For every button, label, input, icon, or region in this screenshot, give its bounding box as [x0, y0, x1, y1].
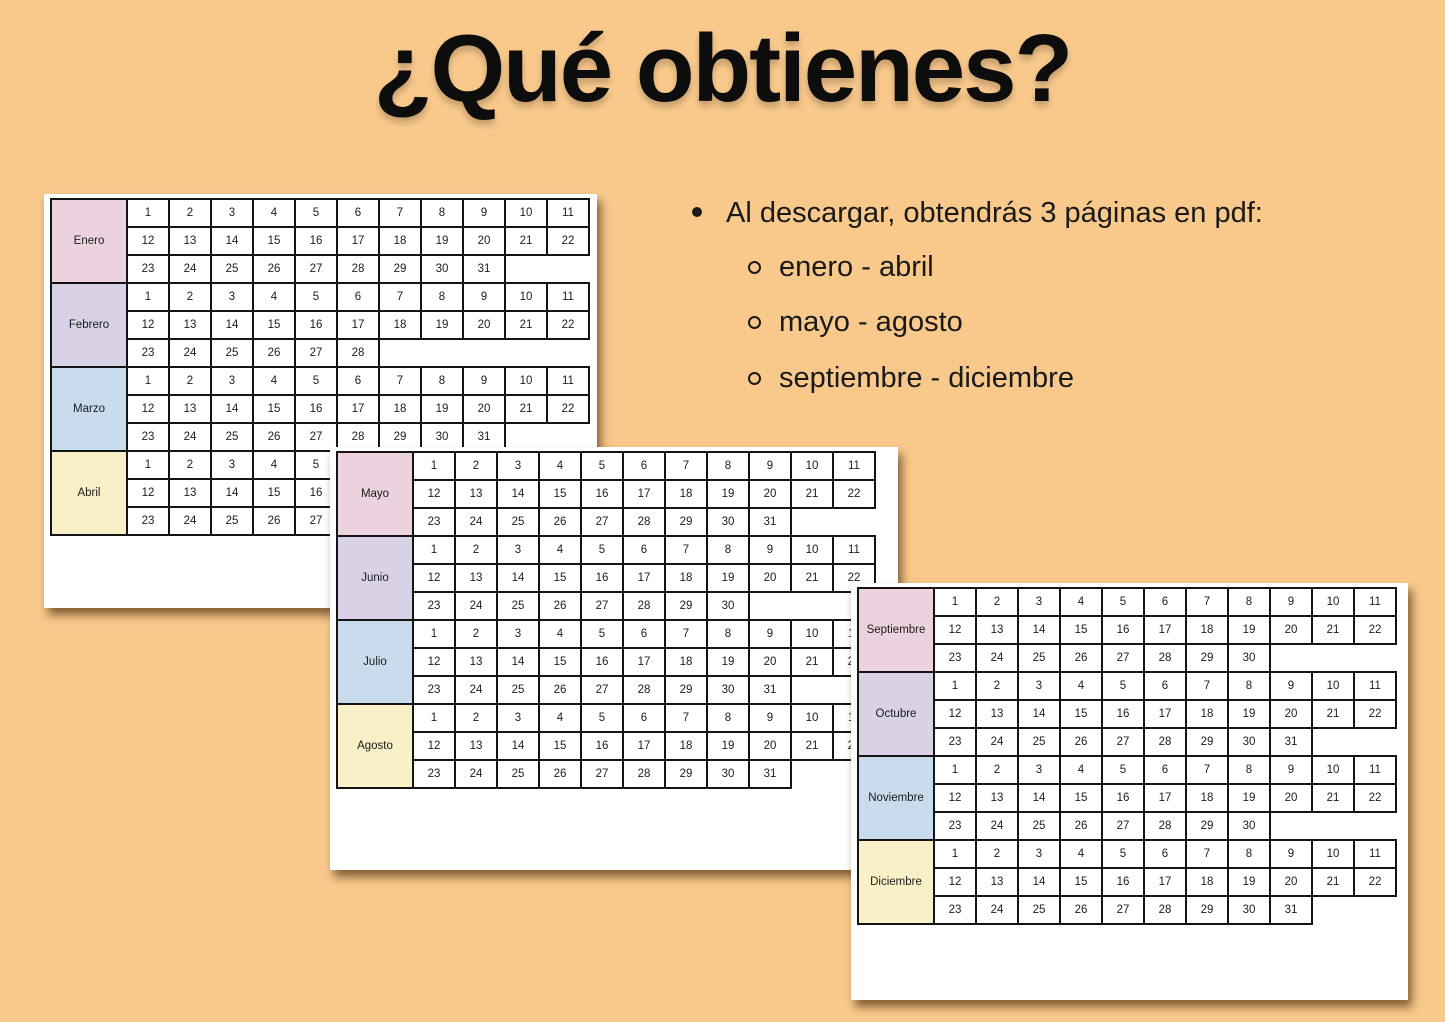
- day-cell: 30: [1227, 643, 1271, 673]
- day-cell: 2: [975, 755, 1019, 785]
- day-cell: 5: [294, 366, 338, 396]
- day-cell: 21: [790, 731, 834, 761]
- day-cell: 1: [126, 282, 170, 312]
- day-cell: 17: [336, 394, 380, 424]
- day-cell: 21: [1311, 867, 1355, 897]
- month-row: 232425262728293031: [412, 759, 876, 789]
- bullet-sub-item: mayo - agosto: [748, 301, 1302, 345]
- month-block-enero: Enero12345678910111213141516171819202122…: [50, 198, 597, 284]
- month-row: 1234567891011: [126, 198, 590, 228]
- month-row: 2324252627282930: [933, 643, 1397, 673]
- month-label: Junio: [336, 535, 414, 621]
- day-cell: 17: [1143, 615, 1187, 645]
- bullet-sub-list: enero - abril mayo - agosto septiembre -…: [748, 246, 1302, 401]
- day-cell: 10: [790, 535, 834, 565]
- day-cell: 9: [748, 535, 792, 565]
- day-cell: 13: [168, 478, 212, 508]
- day-cell: 13: [454, 731, 498, 761]
- day-cell: 30: [706, 675, 750, 705]
- day-cell: 6: [622, 535, 666, 565]
- month-block-noviembre: Noviembre1234567891011121314151617181920…: [857, 755, 1408, 841]
- day-cell: 15: [1059, 783, 1103, 813]
- day-cell: 22: [1353, 867, 1397, 897]
- day-cell: 14: [1017, 615, 1061, 645]
- day-cell: 18: [664, 479, 708, 509]
- day-cell: 19: [1227, 699, 1271, 729]
- day-cell: 23: [126, 422, 170, 452]
- day-cell: 20: [748, 479, 792, 509]
- day-cell: 20: [462, 310, 506, 340]
- day-cell: 17: [622, 731, 666, 761]
- day-cell: 4: [538, 619, 582, 649]
- day-cell: 20: [748, 563, 792, 593]
- bullet-sub-text-septiembre-diciembre: septiembre - diciembre: [779, 357, 1074, 401]
- day-cell: 1: [412, 535, 456, 565]
- day-cell: 22: [1353, 615, 1397, 645]
- day-cell: 13: [454, 479, 498, 509]
- month-rows: 1234567891011121314151617181920212223242…: [412, 619, 876, 705]
- day-cell: 29: [664, 507, 708, 537]
- day-cell: 4: [538, 535, 582, 565]
- day-cell: 9: [748, 703, 792, 733]
- bullet-circle-icon: [748, 261, 761, 274]
- day-cell: 9: [748, 451, 792, 481]
- day-cell: 11: [546, 366, 590, 396]
- day-cell: 20: [1269, 615, 1313, 645]
- day-cell: 16: [580, 563, 624, 593]
- month-label: Abril: [50, 450, 128, 536]
- day-cell: 21: [1311, 699, 1355, 729]
- day-cell: 27: [580, 507, 624, 537]
- day-cell: 5: [1101, 587, 1145, 617]
- month-rows: 1234567891011121314151617181920212223242…: [933, 839, 1397, 925]
- day-cell: 9: [748, 619, 792, 649]
- bullet-main-text: Al descargar, obtendrás 3 páginas en pdf…: [726, 192, 1286, 236]
- day-cell: 11: [832, 535, 876, 565]
- day-cell: 21: [504, 394, 548, 424]
- day-cell: 14: [1017, 699, 1061, 729]
- bullet-sub-text-mayo-agosto: mayo - agosto: [779, 301, 963, 345]
- day-cell: 3: [496, 451, 540, 481]
- day-cell: 10: [504, 198, 548, 228]
- day-cell: 1: [933, 587, 977, 617]
- day-cell: 21: [790, 647, 834, 677]
- day-cell: 21: [504, 226, 548, 256]
- day-cell: 24: [168, 506, 212, 536]
- day-cell: 14: [496, 647, 540, 677]
- day-cell: 23: [126, 254, 170, 284]
- day-cell: 9: [1269, 755, 1313, 785]
- day-cell: 14: [1017, 867, 1061, 897]
- day-cell: 2: [454, 703, 498, 733]
- bullet-list: Al descargar, obtendrás 3 páginas en pdf…: [692, 192, 1302, 412]
- day-cell: 24: [975, 811, 1019, 841]
- month-row: 1213141516171819202122: [933, 867, 1397, 897]
- day-cell: 14: [210, 478, 254, 508]
- day-cell: 29: [1185, 895, 1229, 925]
- day-cell: 24: [168, 338, 212, 368]
- day-cell: 19: [1227, 783, 1271, 813]
- day-cell: 12: [933, 615, 977, 645]
- day-cell: 18: [1185, 867, 1229, 897]
- day-cell: 21: [790, 563, 834, 593]
- day-cell: 26: [252, 506, 296, 536]
- bullet-sub-item: septiembre - diciembre: [748, 357, 1302, 401]
- day-cell: 24: [454, 675, 498, 705]
- day-cell: 28: [622, 759, 666, 789]
- day-cell: 3: [496, 535, 540, 565]
- day-cell: 28: [1143, 895, 1187, 925]
- month-row: 232425262728: [126, 338, 590, 368]
- day-cell: 16: [294, 394, 338, 424]
- day-cell: 2: [975, 671, 1019, 701]
- day-cell: 13: [975, 783, 1019, 813]
- day-cell: 8: [420, 198, 464, 228]
- day-cell: 8: [1227, 839, 1271, 869]
- bullet-item-main: Al descargar, obtendrás 3 páginas en pdf…: [692, 192, 1302, 236]
- day-cell: 12: [412, 563, 456, 593]
- month-row: 232425262728293031: [412, 675, 876, 705]
- day-cell: 31: [748, 675, 792, 705]
- day-cell: 30: [1227, 811, 1271, 841]
- day-cell: 7: [378, 198, 422, 228]
- month-row: 1234567891011: [933, 587, 1397, 617]
- month-row: 1234567891011: [933, 671, 1397, 701]
- month-rows: 1234567891011121314151617181920212223242…: [933, 587, 1397, 673]
- bullet-dot-icon: [692, 207, 702, 217]
- day-cell: 26: [538, 675, 582, 705]
- day-cell: 16: [1101, 783, 1145, 813]
- day-cell: 17: [1143, 783, 1187, 813]
- day-cell: 10: [790, 451, 834, 481]
- day-cell: 26: [1059, 727, 1103, 757]
- day-cell: 25: [210, 254, 254, 284]
- day-cell: 14: [496, 731, 540, 761]
- day-cell: 6: [622, 703, 666, 733]
- day-cell: 8: [706, 703, 750, 733]
- day-cell: 7: [664, 535, 708, 565]
- day-cell: 25: [496, 591, 540, 621]
- day-cell: 3: [210, 198, 254, 228]
- month-block-septiembre: Septiembre123456789101112131415161718192…: [857, 587, 1408, 673]
- day-cell: 10: [790, 619, 834, 649]
- month-rows: 1234567891011121314151617181920212223242…: [412, 451, 876, 537]
- day-cell: 26: [1059, 643, 1103, 673]
- day-cell: 18: [378, 310, 422, 340]
- day-cell: 12: [933, 699, 977, 729]
- day-cell: 17: [1143, 867, 1187, 897]
- month-label: Noviembre: [857, 755, 935, 841]
- day-cell: 9: [1269, 839, 1313, 869]
- day-cell: 16: [1101, 699, 1145, 729]
- day-cell: 1: [126, 366, 170, 396]
- month-block-diciembre: Diciembre1234567891011121314151617181920…: [857, 839, 1408, 925]
- day-cell: 10: [1311, 839, 1355, 869]
- month-label: Septiembre: [857, 587, 935, 673]
- month-row: 1213141516171819202122: [412, 647, 876, 677]
- day-cell: 21: [1311, 615, 1355, 645]
- day-cell: 12: [933, 867, 977, 897]
- day-cell: 17: [1143, 699, 1187, 729]
- month-label: Octubre: [857, 671, 935, 757]
- day-cell: 13: [975, 699, 1019, 729]
- day-cell: 5: [1101, 671, 1145, 701]
- day-cell: 26: [538, 759, 582, 789]
- day-cell: 3: [1017, 671, 1061, 701]
- day-cell: 18: [1185, 699, 1229, 729]
- day-cell: 25: [496, 675, 540, 705]
- calendar-page-septiembre-diciembre: Septiembre123456789101112131415161718192…: [851, 583, 1408, 1000]
- day-cell: 13: [454, 563, 498, 593]
- day-cell: 23: [933, 895, 977, 925]
- day-cell: 8: [706, 535, 750, 565]
- day-cell: 13: [168, 310, 212, 340]
- day-cell: 18: [378, 226, 422, 256]
- day-cell: 11: [1353, 587, 1397, 617]
- day-cell: 29: [1185, 727, 1229, 757]
- day-cell: 24: [454, 759, 498, 789]
- day-cell: 17: [622, 647, 666, 677]
- day-cell: 27: [294, 254, 338, 284]
- day-cell: 24: [168, 254, 212, 284]
- day-cell: 10: [1311, 671, 1355, 701]
- day-cell: 29: [378, 254, 422, 284]
- day-cell: 31: [748, 759, 792, 789]
- day-cell: 5: [580, 535, 624, 565]
- day-cell: 2: [454, 535, 498, 565]
- day-cell: 20: [462, 226, 506, 256]
- month-row: 1234567891011: [933, 839, 1397, 869]
- day-cell: 11: [1353, 839, 1397, 869]
- month-row: 1213141516171819202122: [933, 699, 1397, 729]
- day-cell: 25: [1017, 811, 1061, 841]
- day-cell: 5: [1101, 839, 1145, 869]
- day-cell: 11: [546, 282, 590, 312]
- day-cell: 14: [210, 310, 254, 340]
- day-cell: 26: [538, 591, 582, 621]
- bullet-sub-text-enero-abril: enero - abril: [779, 246, 934, 290]
- day-cell: 28: [622, 507, 666, 537]
- day-cell: 1: [933, 839, 977, 869]
- day-cell: 21: [790, 479, 834, 509]
- day-cell: 15: [252, 310, 296, 340]
- month-label: Diciembre: [857, 839, 935, 925]
- day-cell: 8: [1227, 671, 1271, 701]
- day-cell: 28: [1143, 727, 1187, 757]
- month-block-julio: Julio12345678910111213141516171819202122…: [336, 619, 898, 705]
- day-cell: 19: [1227, 615, 1271, 645]
- day-cell: 20: [748, 731, 792, 761]
- day-cell: 3: [1017, 839, 1061, 869]
- month-row: 1213141516171819202122: [126, 394, 590, 424]
- day-cell: 28: [336, 338, 380, 368]
- month-row: 1213141516171819202122: [933, 615, 1397, 645]
- day-cell: 16: [580, 731, 624, 761]
- day-cell: 19: [420, 310, 464, 340]
- day-cell: 11: [832, 451, 876, 481]
- day-cell: 1: [126, 450, 170, 480]
- day-cell: 24: [975, 643, 1019, 673]
- calendar-page-mayo-agosto: Mayo123456789101112131415161718192021222…: [330, 447, 898, 870]
- day-cell: 9: [1269, 671, 1313, 701]
- day-cell: 6: [1143, 839, 1187, 869]
- day-cell: 28: [1143, 643, 1187, 673]
- month-label: Agosto: [336, 703, 414, 789]
- day-cell: 27: [580, 591, 624, 621]
- day-cell: 3: [210, 366, 254, 396]
- day-cell: 3: [210, 450, 254, 480]
- day-cell: 15: [538, 479, 582, 509]
- day-cell: 7: [664, 619, 708, 649]
- day-cell: 30: [1227, 895, 1271, 925]
- month-rows: 1234567891011121314151617181920212223242…: [412, 535, 876, 621]
- bullet-circle-icon: [748, 316, 761, 329]
- day-cell: 10: [504, 366, 548, 396]
- day-cell: 7: [378, 282, 422, 312]
- day-cell: 7: [1185, 755, 1229, 785]
- month-row: 1234567891011: [412, 535, 876, 565]
- day-cell: 11: [546, 198, 590, 228]
- day-cell: 24: [454, 507, 498, 537]
- day-cell: 20: [1269, 867, 1313, 897]
- day-cell: 1: [412, 619, 456, 649]
- day-cell: 25: [210, 506, 254, 536]
- day-cell: 19: [706, 479, 750, 509]
- day-cell: 31: [462, 254, 506, 284]
- day-cell: 25: [1017, 895, 1061, 925]
- day-cell: 23: [412, 507, 456, 537]
- day-cell: 3: [496, 619, 540, 649]
- month-row: 1234567891011: [126, 282, 590, 312]
- day-cell: 3: [210, 282, 254, 312]
- day-cell: 14: [210, 394, 254, 424]
- day-cell: 2: [975, 587, 1019, 617]
- day-cell: 4: [252, 450, 296, 480]
- day-cell: 29: [664, 675, 708, 705]
- day-cell: 26: [252, 422, 296, 452]
- day-cell: 9: [462, 198, 506, 228]
- day-cell: 8: [1227, 755, 1271, 785]
- day-cell: 19: [706, 731, 750, 761]
- day-cell: 26: [1059, 895, 1103, 925]
- month-block-marzo: Marzo12345678910111213141516171819202122…: [50, 366, 597, 452]
- day-cell: 24: [975, 895, 1019, 925]
- day-cell: 15: [1059, 867, 1103, 897]
- day-cell: 29: [1185, 643, 1229, 673]
- day-cell: 27: [294, 338, 338, 368]
- day-cell: 14: [1017, 783, 1061, 813]
- day-cell: 22: [546, 310, 590, 340]
- month-label: Febrero: [50, 282, 128, 368]
- day-cell: 31: [1269, 895, 1313, 925]
- day-cell: 30: [706, 759, 750, 789]
- month-row: 232425262728293031: [412, 507, 876, 537]
- day-cell: 1: [933, 755, 977, 785]
- day-cell: 6: [1143, 587, 1187, 617]
- day-cell: 18: [1185, 615, 1229, 645]
- day-cell: 31: [1269, 727, 1313, 757]
- day-cell: 16: [1101, 615, 1145, 645]
- day-cell: 8: [1227, 587, 1271, 617]
- day-cell: 13: [975, 867, 1019, 897]
- day-cell: 9: [462, 366, 506, 396]
- month-row: 1213141516171819202122: [412, 479, 876, 509]
- day-cell: 3: [1017, 587, 1061, 617]
- day-cell: 18: [378, 394, 422, 424]
- day-cell: 29: [664, 759, 708, 789]
- day-cell: 27: [1101, 643, 1145, 673]
- day-cell: 31: [748, 507, 792, 537]
- month-block-agosto: Agosto1234567891011121314151617181920212…: [336, 703, 898, 789]
- slide-canvas: ¿Qué obtienes? Al descargar, obtendrás 3…: [0, 0, 1445, 1022]
- day-cell: 5: [580, 619, 624, 649]
- day-cell: 13: [975, 615, 1019, 645]
- day-cell: 15: [1059, 699, 1103, 729]
- day-cell: 18: [664, 647, 708, 677]
- day-cell: 4: [252, 282, 296, 312]
- day-cell: 14: [210, 226, 254, 256]
- month-label: Enero: [50, 198, 128, 284]
- month-rows: 1234567891011121314151617181920212223242…: [126, 366, 590, 452]
- day-cell: 9: [462, 282, 506, 312]
- day-cell: 28: [336, 254, 380, 284]
- month-row: 1213141516171819202122: [126, 310, 590, 340]
- month-row: 1213141516171819202122: [412, 731, 876, 761]
- day-cell: 25: [496, 507, 540, 537]
- day-cell: 12: [126, 226, 170, 256]
- day-cell: 9: [1269, 587, 1313, 617]
- day-cell: 19: [420, 226, 464, 256]
- month-row: 1234567891011: [412, 703, 876, 733]
- day-cell: 4: [1059, 755, 1103, 785]
- day-cell: 12: [412, 479, 456, 509]
- day-cell: 8: [706, 619, 750, 649]
- day-cell: 4: [1059, 587, 1103, 617]
- day-cell: 1: [126, 198, 170, 228]
- day-cell: 8: [420, 366, 464, 396]
- day-cell: 24: [168, 422, 212, 452]
- day-cell: 1: [933, 671, 977, 701]
- day-cell: 7: [1185, 671, 1229, 701]
- day-cell: 10: [1311, 755, 1355, 785]
- day-cell: 24: [975, 727, 1019, 757]
- day-cell: 7: [1185, 839, 1229, 869]
- month-row: 232425262728293031: [933, 727, 1397, 757]
- month-label: Mayo: [336, 451, 414, 537]
- month-row: 1213141516171819202122: [933, 783, 1397, 813]
- day-cell: 26: [538, 507, 582, 537]
- day-cell: 23: [412, 675, 456, 705]
- day-cell: 2: [454, 451, 498, 481]
- month-row: 232425262728293031: [933, 895, 1397, 925]
- month-block-mayo: Mayo123456789101112131415161718192021222…: [336, 451, 898, 537]
- month-rows: 1234567891011121314151617181920212223242…: [933, 755, 1397, 841]
- day-cell: 4: [1059, 839, 1103, 869]
- day-cell: 4: [538, 703, 582, 733]
- month-label: Julio: [336, 619, 414, 705]
- day-cell: 5: [580, 451, 624, 481]
- day-cell: 21: [1311, 783, 1355, 813]
- day-cell: 11: [1353, 671, 1397, 701]
- day-cell: 12: [126, 394, 170, 424]
- day-cell: 30: [706, 591, 750, 621]
- day-cell: 1: [412, 703, 456, 733]
- day-cell: 29: [1185, 811, 1229, 841]
- day-cell: 16: [294, 310, 338, 340]
- day-cell: 30: [706, 507, 750, 537]
- day-cell: 16: [580, 479, 624, 509]
- day-cell: 27: [580, 675, 624, 705]
